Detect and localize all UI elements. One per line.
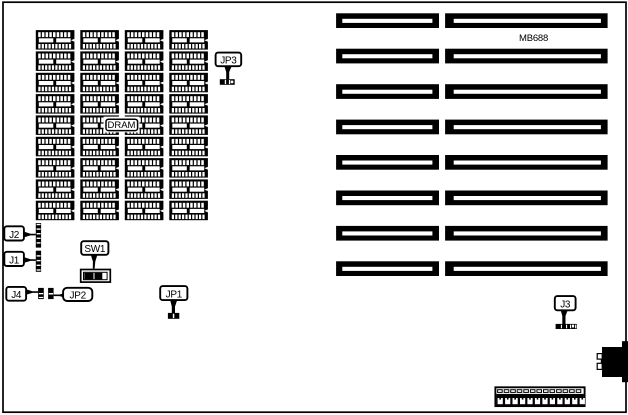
svg-text:SW1: SW1	[84, 244, 106, 255]
svg-text:MB688: MB688	[519, 33, 548, 44]
svg-text:J3: J3	[560, 300, 571, 311]
svg-text:JP2: JP2	[70, 290, 87, 301]
svg-text:J2: J2	[9, 230, 20, 241]
svg-text:JP3: JP3	[220, 55, 237, 66]
svg-text:J4: J4	[11, 290, 22, 301]
svg-text:DRAM: DRAM	[108, 120, 136, 131]
svg-text:J1: J1	[9, 256, 20, 267]
svg-text:JP1: JP1	[166, 289, 183, 300]
